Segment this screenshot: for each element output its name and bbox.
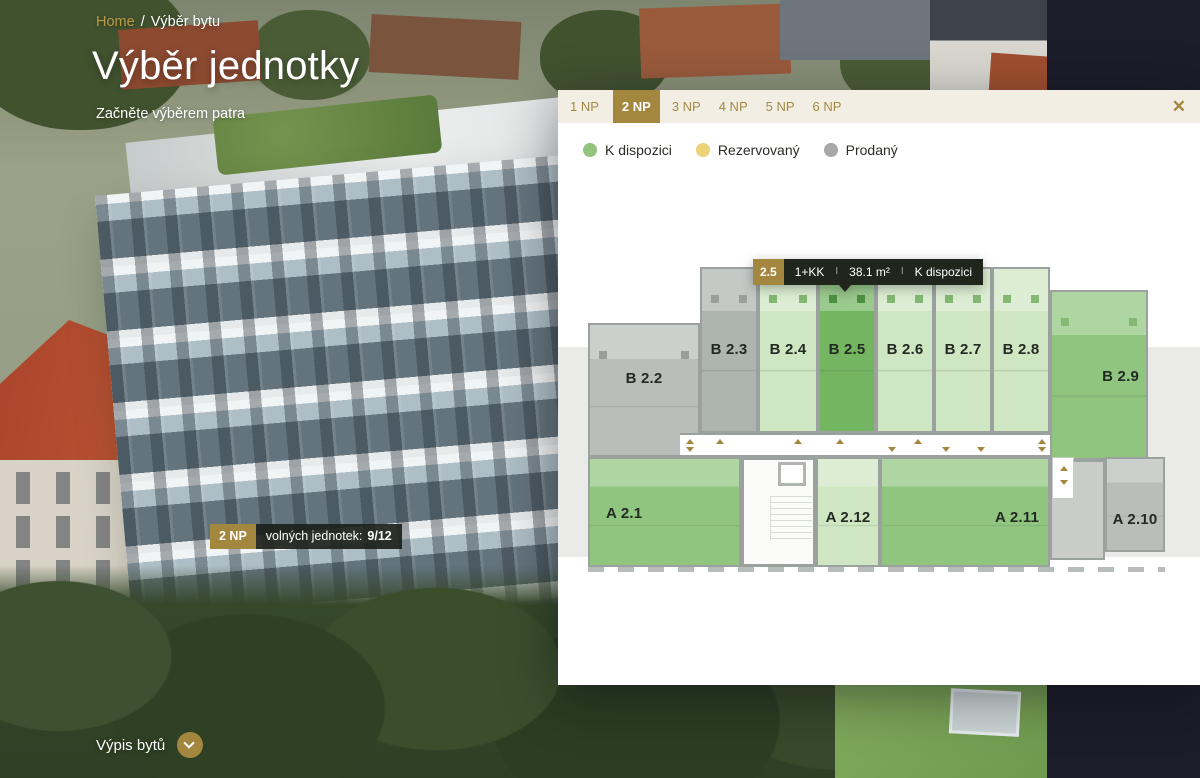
photo-roof-shape <box>369 14 522 80</box>
tooltip-separator: I <box>901 259 904 285</box>
door-arrow-icon <box>716 439 724 444</box>
tooltip-arrow <box>839 285 851 292</box>
door-arrow-icon <box>1038 439 1046 444</box>
unit-label: B 2.7 <box>936 341 990 358</box>
unit-label: B 2.3 <box>702 341 756 358</box>
unit-label: A 2.10 <box>1107 511 1163 528</box>
close-icon[interactable]: ✕ <box>1172 90 1186 123</box>
tooltip-status: K dispozici <box>915 259 972 285</box>
breadcrumb-home-link[interactable]: Home <box>96 14 135 30</box>
unit-label: B 2.2 <box>590 370 698 387</box>
unit-b2-6[interactable]: B 2.6 <box>876 267 934 433</box>
page-title: Výběr jednotky <box>92 44 359 89</box>
door-arrow-icon <box>836 439 844 444</box>
unit-b2-3[interactable]: B 2.3 <box>700 267 758 433</box>
door-arrow-icon <box>686 439 694 444</box>
door-arrow-icon <box>1060 466 1068 471</box>
stairwell <box>741 457 816 567</box>
door-arrow-icon <box>942 447 950 452</box>
unit-b2-9[interactable]: B 2.9 <box>1050 290 1148 460</box>
door-arrow-icon <box>888 447 896 452</box>
unit-b2-7[interactable]: B 2.7 <box>934 267 992 433</box>
floor-badge-label: volných jednotek: <box>266 529 363 543</box>
building-floor-badge[interactable]: 2 NP volných jednotek:9/12 <box>210 524 402 549</box>
elevator-shaft <box>778 462 806 486</box>
panel-body: K dispozici Rezervovaný Prodaný B 2.2 B … <box>558 123 1200 685</box>
tooltip-layout: 1+KK <box>795 259 825 285</box>
facade-teeth <box>588 567 1165 572</box>
unit-label: B 2.8 <box>994 341 1048 358</box>
page: Home / Výběr bytu Výběr jednotky Začněte… <box>0 0 1200 778</box>
tab-5np[interactable]: 5 NP <box>766 90 795 123</box>
page-subtitle: Začněte výběrem patra <box>96 106 245 122</box>
tab-3np[interactable]: 3 NP <box>672 90 701 123</box>
stairs <box>770 496 812 540</box>
door-arrow-icon <box>1060 480 1068 485</box>
unit-label: A 2.1 <box>606 505 642 522</box>
floor-badge-text: volných jednotek:9/12 <box>256 524 402 549</box>
apartment-list-label: Výpis bytů <box>96 737 165 754</box>
unit-a2-12[interactable]: A 2.12 <box>816 457 880 567</box>
apartment-list-button[interactable]: Výpis bytů <box>96 732 203 758</box>
door-arrow-icon <box>794 439 802 444</box>
tooltip-separator: I <box>835 259 838 285</box>
corridor <box>680 433 1050 457</box>
unit-a2-11[interactable]: A 2.11 <box>880 457 1050 567</box>
tab-6np[interactable]: 6 NP <box>813 90 842 123</box>
door-arrow-icon <box>686 447 694 452</box>
floor-badge-floor: 2 NP <box>210 524 256 549</box>
unit-label: A 2.11 <box>995 509 1039 526</box>
breadcrumb-separator: / <box>141 14 145 30</box>
door-arrow-icon <box>914 439 922 444</box>
floor-tabs: 1 NP 2 NP 3 NP 4 NP 5 NP 6 NP ✕ <box>558 90 1200 123</box>
tooltip-area: 38.1 m² <box>849 259 890 285</box>
breadcrumb-current: Výběr bytu <box>151 14 220 30</box>
unit-a2-10[interactable]: A 2.10 <box>1105 457 1165 552</box>
floorplan: B 2.2 B 2.3 B 2.4 B 2.5 B 2.6 B 2.7 <box>558 123 1200 685</box>
tab-1np[interactable]: 1 NP <box>570 90 599 123</box>
photo-roof-shape <box>639 3 791 78</box>
unit-label: A 2.12 <box>818 509 878 526</box>
chevron-glyph <box>184 737 195 748</box>
unit-label: B 2.5 <box>820 341 874 358</box>
unit-b2-8[interactable]: B 2.8 <box>992 267 1050 433</box>
photo-roof-shape <box>780 0 930 60</box>
tab-4np[interactable]: 4 NP <box>719 90 748 123</box>
door-arrow-icon <box>1038 447 1046 452</box>
unit-a2-1[interactable]: A 2.1 <box>588 457 741 567</box>
tooltip-unit-number: 2.5 <box>753 259 784 285</box>
floor-badge-count: 9/12 <box>367 529 391 543</box>
unit-label: B 2.6 <box>878 341 932 358</box>
floor-selector-panel: 1 NP 2 NP 3 NP 4 NP 5 NP 6 NP ✕ K dispoz… <box>558 90 1200 685</box>
tab-2np[interactable]: 2 NP <box>613 90 660 123</box>
corridor-stub <box>1052 457 1074 499</box>
unit-b2-4[interactable]: B 2.4 <box>758 267 818 433</box>
tooltip-body: 1+KK I 38.1 m² I K dispozici <box>784 259 983 285</box>
door-arrow-icon <box>977 447 985 452</box>
breadcrumb: Home / Výběr bytu <box>96 14 220 30</box>
photo-roof-shape <box>989 53 1047 96</box>
chevron-down-icon[interactable] <box>177 732 203 758</box>
unit-tooltip: 2.5 1+KK I 38.1 m² I K dispozici <box>753 259 983 285</box>
unit-label: B 2.9 <box>1102 368 1139 385</box>
unit-label: B 2.4 <box>760 341 816 358</box>
photo-hot-tub <box>949 688 1021 737</box>
